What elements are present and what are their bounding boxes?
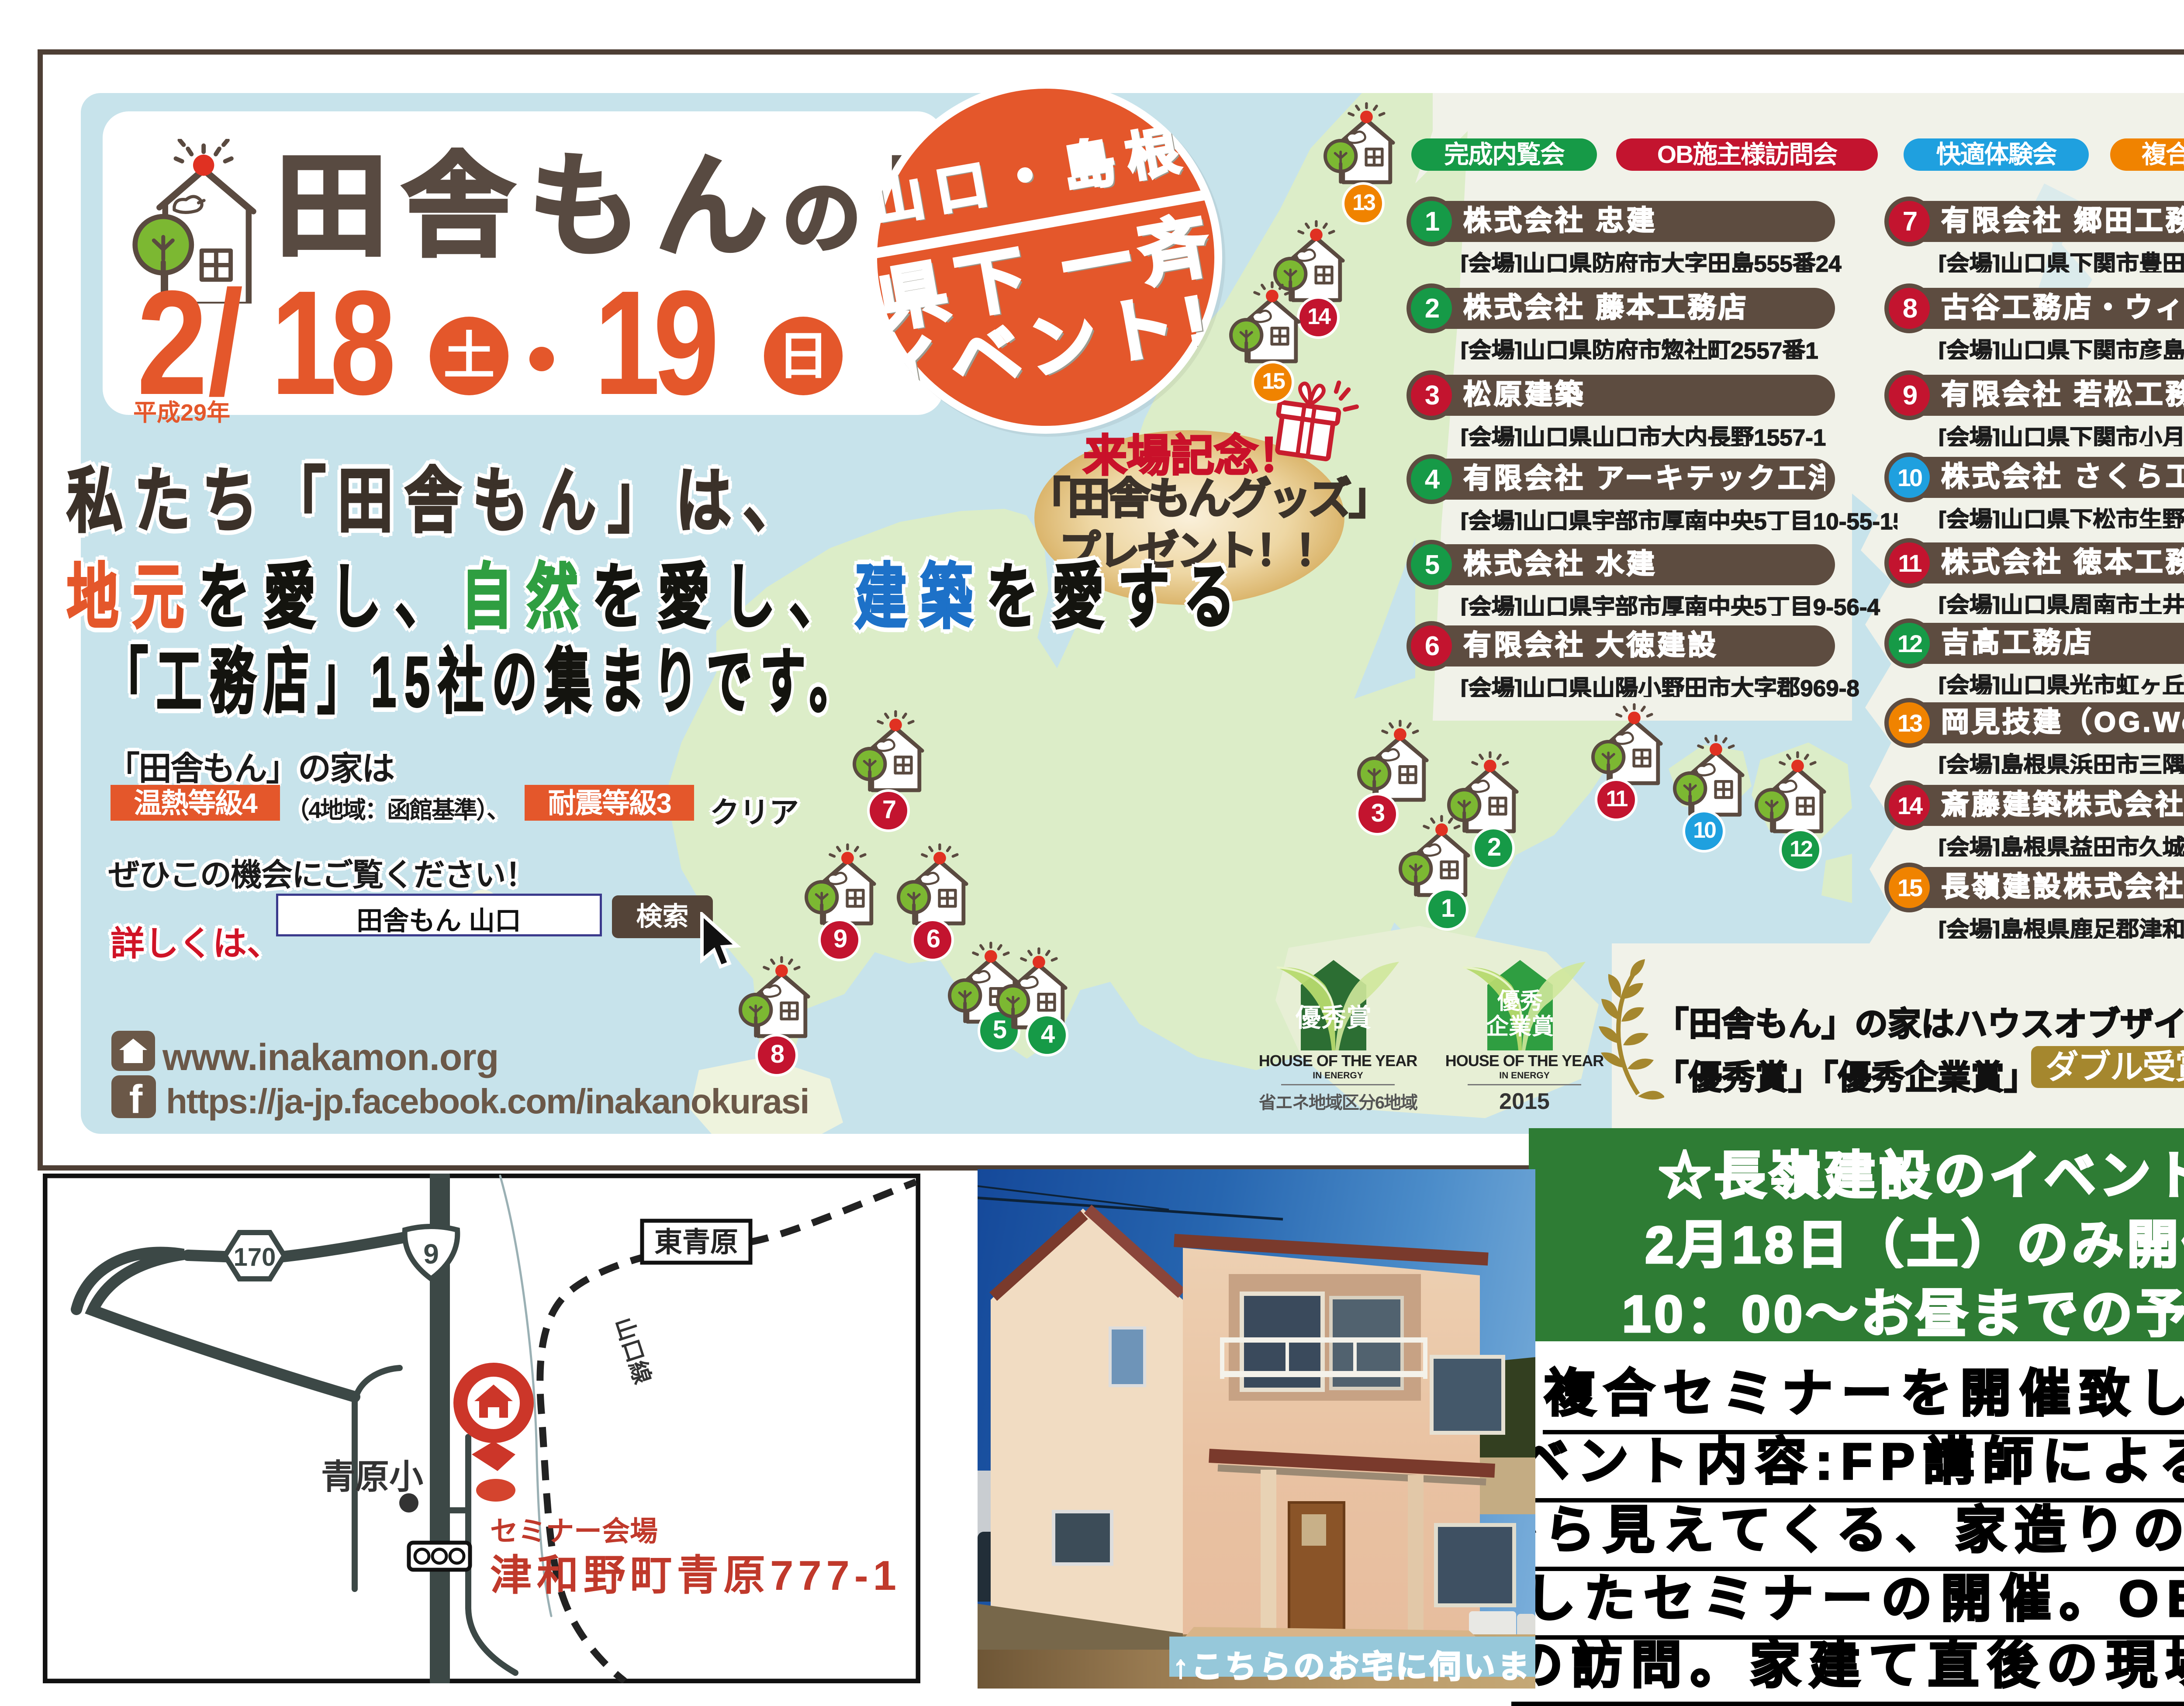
svg-text:東青原: 東青原	[654, 1226, 738, 1258]
svg-text:セミナー会場: セミナー会場	[490, 1516, 658, 1547]
svg-text:f: f	[129, 1077, 143, 1118]
svg-text:170: 170	[234, 1243, 276, 1271]
svg-text:青原小: 青原小	[321, 1457, 423, 1496]
svg-text:優秀: 優秀	[1497, 989, 1543, 1014]
svg-text:企業賞: 企業賞	[1486, 1014, 1554, 1039]
svg-text:優秀賞: 優秀賞	[1295, 1004, 1372, 1032]
svg-text:9: 9	[423, 1238, 439, 1270]
svg-text:津和野町青原777-1: 津和野町青原777-1	[490, 1552, 896, 1599]
